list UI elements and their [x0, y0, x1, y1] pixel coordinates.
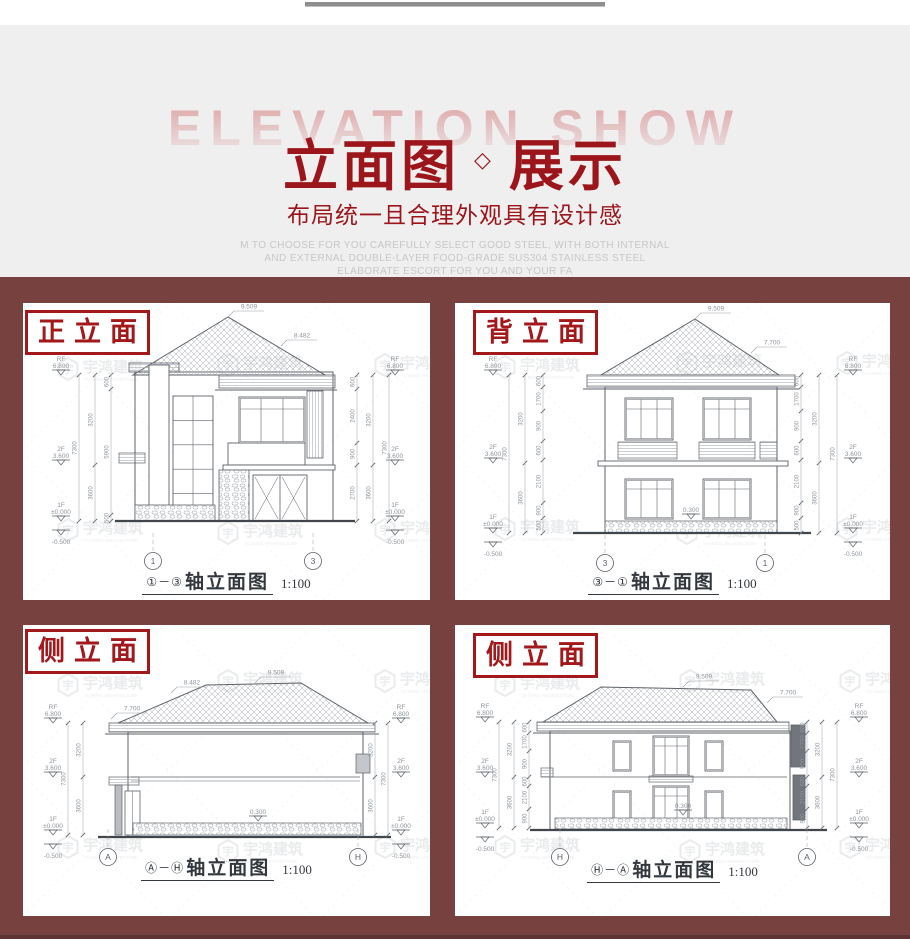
svg-text:宇鸿建筑: 宇鸿建筑 [400, 670, 430, 688]
panel-tag: 侧立面 [25, 629, 150, 674]
svg-text:宇: 宇 [63, 678, 74, 692]
svg-text:1F: 1F [57, 502, 65, 509]
svg-text:3600: 3600 [519, 491, 525, 505]
panel-tag: 背立面 [473, 310, 598, 355]
svg-text:宇: 宇 [380, 840, 391, 854]
svg-text:宇鸿建筑: 宇鸿建筑 [520, 836, 580, 854]
svg-text:900: 900 [801, 758, 807, 769]
caption-text: 轴立面图 [185, 572, 269, 593]
svg-text:3.600: 3.600 [851, 765, 868, 772]
caption-axis-range: ③－① [592, 575, 629, 589]
svg-text:7300: 7300 [382, 772, 388, 786]
svg-text:7300: 7300 [831, 447, 837, 461]
svg-text:RF: RF [489, 356, 498, 363]
svg-text:3.600: 3.600 [393, 765, 410, 772]
svg-text:YU HONG ARCHITECTURE: YU HONG ARCHITECTURE [521, 537, 574, 542]
svg-text:8.482: 8.482 [184, 680, 201, 687]
svg-text:RF: RF [481, 703, 490, 710]
svg-text:2F: 2F [489, 444, 497, 451]
caption-scale: 1:100 [727, 576, 757, 591]
svg-text:9.509: 9.509 [708, 306, 725, 313]
caption-underlined: Ⓐ－Ⓗ轴立面图 [141, 861, 274, 881]
svg-text:1F: 1F [397, 816, 405, 823]
svg-text:3200: 3200 [813, 412, 819, 426]
svg-text:±0.000: ±0.000 [843, 521, 863, 528]
svg-text:3.600: 3.600 [485, 451, 502, 458]
svg-text:YU HONG ARCHITECTURE: YU HONG ARCHITECTURE [401, 373, 430, 378]
panel-front-elevation: 宇宇鸿建筑YU HONG ARCHITECTURE宇宇鸿建筑YU HONG AR… [23, 303, 430, 600]
svg-text:600: 600 [537, 375, 543, 386]
svg-text:3600: 3600 [77, 799, 83, 813]
drawing-caption: ③－①轴立面图1:100 [455, 567, 890, 594]
svg-text:7300: 7300 [73, 441, 79, 455]
desc-line: M TO CHOOSE FOR YOU CAREFULLY SELECT GOO… [0, 239, 910, 252]
svg-text:7300: 7300 [383, 441, 389, 455]
svg-text:600: 600 [351, 376, 357, 387]
svg-text:1F: 1F [49, 816, 57, 823]
caption-underlined: ③－①轴立面图 [588, 575, 719, 595]
caption-scale: 1:100 [728, 864, 758, 879]
svg-text:6.800: 6.800 [393, 711, 410, 718]
drawing-caption: Ⓗ－Ⓐ轴立面图1:100 [455, 855, 890, 882]
svg-text:900: 900 [801, 813, 807, 824]
svg-text:2100: 2100 [801, 790, 807, 804]
svg-text:2400: 2400 [351, 409, 357, 423]
svg-text:宇鸿建筑: 宇鸿建筑 [865, 836, 890, 854]
svg-text:1F: 1F [391, 502, 399, 509]
svg-text:±0.000: ±0.000 [51, 509, 71, 516]
svg-text:YU HONG ARCHITECTURE: YU HONG ARCHITECTURE [863, 371, 890, 376]
svg-text:2F: 2F [849, 444, 857, 451]
svg-text:宇鸿建筑: 宇鸿建筑 [865, 670, 890, 688]
svg-text:YU HONG ARCHITECTURE: YU HONG ARCHITECTURE [521, 375, 574, 380]
svg-text:600: 600 [795, 445, 801, 456]
svg-text:3200: 3200 [508, 742, 514, 756]
svg-text:YU HONG ARCHITECTURE: YU HONG ARCHITECTURE [244, 541, 297, 546]
svg-text:宇鸿建筑: 宇鸿建筑 [520, 356, 580, 374]
svg-text:3: 3 [311, 556, 316, 566]
bottom-strip [0, 935, 910, 939]
caption-scale: 1:100 [282, 862, 312, 877]
svg-text:宇鸿建筑: 宇鸿建筑 [400, 354, 430, 372]
svg-text:-0.500: -0.500 [484, 551, 503, 558]
svg-text:3.600: 3.600 [45, 765, 62, 772]
svg-text:2F: 2F [49, 758, 57, 765]
svg-text:±0.000: ±0.000 [475, 816, 495, 823]
svg-text:1700: 1700 [795, 392, 801, 406]
panel-tag: 侧立面 [473, 633, 598, 678]
svg-text:宇: 宇 [500, 678, 511, 692]
panel-tag: 正立面 [25, 310, 150, 355]
drawing-caption: Ⓐ－Ⓗ轴立面图1:100 [23, 853, 430, 880]
caption-axis-range: Ⓐ－Ⓗ [145, 861, 184, 875]
svg-text:3600: 3600 [89, 486, 95, 500]
svg-text:宇鸿建筑: 宇鸿建筑 [705, 670, 765, 688]
svg-text:7.700: 7.700 [780, 690, 797, 697]
svg-text:900: 900 [523, 758, 529, 769]
svg-text:3600: 3600 [508, 795, 514, 809]
svg-text:600: 600 [523, 722, 529, 733]
svg-text:宇鸿建筑: 宇鸿建筑 [400, 519, 430, 537]
svg-text:±0.000: ±0.000 [385, 509, 405, 516]
svg-text:2F: 2F [397, 758, 405, 765]
svg-text:2F: 2F [57, 446, 65, 453]
svg-text:YU HONG ARCHITECTURE: YU HONG ARCHITECTURE [863, 537, 890, 542]
svg-text:3.600: 3.600 [387, 453, 404, 460]
svg-text:RF: RF [397, 704, 406, 711]
svg-text:YU HONG ARCHITECTURE: YU HONG ARCHITECTURE [703, 541, 756, 546]
svg-text:6.800: 6.800 [485, 363, 502, 370]
header-description: M TO CHOOSE FOR YOU CAREFULLY SELECT GOO… [0, 239, 910, 277]
svg-text:2F: 2F [391, 446, 399, 453]
page: ELEVATION SHOW 立面图◇展示 布局统一且合理外观具有设计感 M T… [0, 0, 910, 939]
svg-text:900: 900 [537, 420, 543, 431]
svg-text:6.800: 6.800 [477, 710, 494, 717]
svg-text:7300: 7300 [62, 772, 68, 786]
panel-side-elevation-h: 宇宇鸿建筑YU HONG ARCHITECTURE宇宇鸿建筑YU HONG AR… [455, 625, 890, 916]
svg-text:900: 900 [351, 448, 357, 459]
svg-text:-0.500: -0.500 [386, 539, 405, 546]
svg-text:0.300: 0.300 [675, 803, 692, 810]
svg-text:2F: 2F [481, 758, 489, 765]
svg-text:500: 500 [105, 512, 111, 523]
svg-text:3600: 3600 [369, 799, 375, 813]
svg-text:7300: 7300 [503, 447, 509, 461]
svg-text:1700: 1700 [537, 392, 543, 406]
svg-text:900: 900 [795, 420, 801, 431]
svg-text:±0.000: ±0.000 [391, 823, 411, 830]
svg-text:3200: 3200 [367, 413, 373, 427]
desc-line: AND EXTERNAL DOUBLE-LAYER FOOD-GRADE SUS… [0, 252, 910, 265]
svg-text:3200: 3200 [369, 743, 375, 757]
svg-text:2F: 2F [855, 758, 863, 765]
svg-text:宇鸿建筑: 宇鸿建筑 [862, 518, 890, 536]
svg-text:6.800: 6.800 [387, 363, 404, 370]
svg-text:±0.000: ±0.000 [483, 521, 503, 528]
svg-text:3600: 3600 [816, 795, 822, 809]
svg-text:6.800: 6.800 [851, 710, 868, 717]
diamond-separator-icon: ◇ [474, 147, 495, 172]
svg-text:RF: RF [849, 356, 858, 363]
svg-text:3200: 3200 [89, 413, 95, 427]
svg-text:3.600: 3.600 [477, 765, 494, 772]
svg-text:0.300: 0.300 [250, 809, 267, 816]
svg-text:500: 500 [537, 520, 543, 531]
svg-text:600: 600 [795, 375, 801, 386]
svg-text:600: 600 [523, 776, 529, 787]
svg-text:6.800: 6.800 [45, 711, 62, 718]
svg-text:3200: 3200 [519, 412, 525, 426]
svg-text:900: 900 [537, 505, 543, 516]
caption-scale: 1:100 [281, 576, 311, 591]
svg-text:7300: 7300 [493, 768, 499, 782]
svg-text:2100: 2100 [795, 474, 801, 488]
svg-text:-0.500: -0.500 [52, 539, 71, 546]
page-title: 立面图◇展示 [0, 121, 910, 201]
caption-underlined: Ⓗ－Ⓐ轴立面图 [587, 863, 720, 883]
svg-text:600: 600 [537, 445, 543, 456]
svg-text:宇: 宇 [63, 840, 74, 854]
svg-text:5900: 5900 [105, 445, 111, 459]
caption-underlined: ①－③轴立面图 [142, 575, 273, 595]
svg-text:6.800: 6.800 [845, 363, 862, 370]
caption-text: 轴立面图 [632, 860, 716, 881]
svg-text:0.300: 0.300 [683, 507, 700, 514]
title-part-1: 立面图 [283, 135, 460, 197]
svg-text:2100: 2100 [523, 790, 529, 804]
svg-text:1700: 1700 [801, 735, 807, 749]
svg-text:YU HONG ARCHITECTURE: YU HONG ARCHITECTURE [84, 693, 137, 698]
top-notch-bar [305, 2, 605, 7]
svg-text:宇: 宇 [380, 674, 391, 688]
svg-text:宇鸿建筑: 宇鸿建筑 [83, 674, 143, 692]
svg-text:±0.000: ±0.000 [43, 823, 63, 830]
svg-text:YU HONG ARCHITECTURE: YU HONG ARCHITECTURE [401, 538, 430, 543]
svg-text:RF: RF [391, 356, 400, 363]
caption-axis-range: ①－③ [146, 575, 183, 589]
svg-text:3.600: 3.600 [845, 451, 862, 458]
title-part-2: 展示 [509, 135, 627, 197]
svg-text:3600: 3600 [813, 491, 819, 505]
page-subtitle: 布局统一且合理外观具有设计感 [0, 196, 910, 230]
svg-text:1F: 1F [855, 809, 863, 816]
svg-text:YU HONG ARCHITECTURE: YU HONG ARCHITECTURE [84, 377, 137, 382]
svg-text:宇: 宇 [223, 526, 234, 540]
svg-text:1F: 1F [489, 514, 497, 521]
svg-text:RF: RF [855, 703, 864, 710]
svg-text:6.800: 6.800 [53, 363, 70, 370]
svg-text:7.700: 7.700 [764, 340, 781, 347]
svg-text:-0.500: -0.500 [844, 551, 863, 558]
svg-text:9.509: 9.509 [696, 674, 713, 681]
svg-text:9.509: 9.509 [241, 304, 258, 311]
svg-text:RF: RF [57, 356, 66, 363]
svg-text:600: 600 [105, 376, 111, 387]
caption-text: 轴立面图 [186, 858, 270, 879]
svg-text:2700: 2700 [351, 486, 357, 500]
svg-text:3200: 3200 [77, 743, 83, 757]
svg-text:YU HONG ARCHITECTURE: YU HONG ARCHITECTURE [521, 693, 574, 698]
svg-text:YU HONG ARCHITECTURE: YU HONG ARCHITECTURE [866, 689, 890, 694]
caption-axis-range: Ⓗ－Ⓐ [591, 863, 630, 877]
svg-text:3600: 3600 [367, 486, 373, 500]
svg-text:7300: 7300 [831, 768, 837, 782]
svg-text:宇鸿建筑: 宇鸿建筑 [520, 518, 580, 536]
svg-text:7.700: 7.700 [124, 706, 141, 713]
svg-text:宇: 宇 [845, 674, 856, 688]
svg-text:500: 500 [795, 520, 801, 531]
drawing-caption: ①－③轴立面图1:100 [23, 567, 430, 594]
svg-text:宇鸿建筑: 宇鸿建筑 [243, 522, 303, 540]
svg-text:3.600: 3.600 [53, 453, 70, 460]
svg-text:宇鸿建筑: 宇鸿建筑 [862, 352, 890, 370]
svg-text:900: 900 [523, 813, 529, 824]
caption-text: 轴立面图 [631, 572, 715, 593]
svg-text:RF: RF [49, 704, 58, 711]
svg-text:600: 600 [801, 722, 807, 733]
svg-text:YU HONG ARCHITECTURE: YU HONG ARCHITECTURE [84, 538, 137, 543]
svg-text:900: 900 [795, 505, 801, 516]
svg-text:-0.500: -0.500 [850, 846, 869, 853]
header-section: ELEVATION SHOW 立面图◇展示 布局统一且合理外观具有设计感 M T… [0, 25, 910, 277]
elevation-showcase: 宇宇鸿建筑YU HONG ARCHITECTURE宇宇鸿建筑YU HONG AR… [0, 277, 910, 939]
svg-text:宇: 宇 [500, 360, 511, 374]
svg-text:YU HONG ARCHITECTURE: YU HONG ARCHITECTURE [401, 689, 430, 694]
svg-text:1700: 1700 [523, 735, 529, 749]
panel-side-elevation-a: 宇宇鸿建筑YU HONG ARCHITECTURE宇宇鸿建筑YU HONG AR… [23, 625, 430, 916]
svg-text:宇: 宇 [500, 840, 511, 854]
svg-text:±0.000: ±0.000 [849, 816, 869, 823]
svg-text:-0.500: -0.500 [476, 846, 495, 853]
svg-text:1: 1 [151, 556, 156, 566]
svg-text:1F: 1F [849, 514, 857, 521]
svg-text:2100: 2100 [537, 474, 543, 488]
svg-text:600: 600 [801, 776, 807, 787]
svg-text:9.509: 9.509 [268, 670, 285, 677]
desc-line: ELABORATE ESCORT FOR YOU AND YOUR FA [0, 265, 910, 277]
svg-text:8.482: 8.482 [294, 333, 311, 340]
panel-back-elevation: 宇宇鸿建筑YU HONG ARCHITECTURE宇宇鸿建筑YU HONG AR… [455, 303, 890, 600]
svg-text:3200: 3200 [816, 742, 822, 756]
svg-text:1F: 1F [481, 809, 489, 816]
